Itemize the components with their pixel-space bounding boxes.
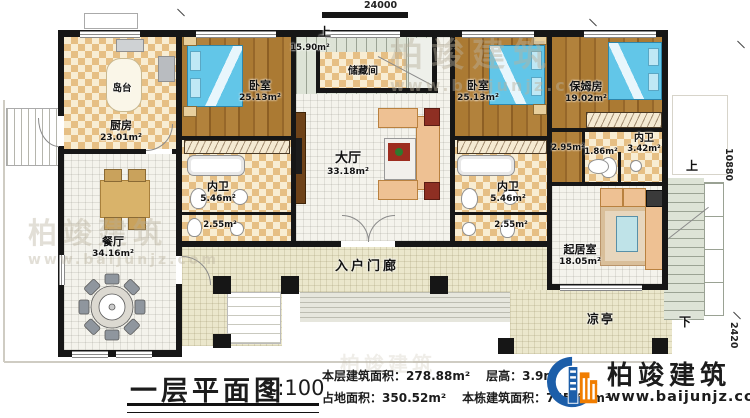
dim-right: 10880 [723,148,734,181]
terrace-outline [672,95,728,175]
floor-plan-sheet: 柏竣建筑 www.baijunjz.com 柏竣建筑 www.baijunjz.… [0,0,750,418]
right-staircase [664,178,704,320]
window [72,351,108,358]
porch-side-steps [227,292,281,344]
label-island: 岛台 [112,84,131,95]
label-kitchen: 厨房 23.01m² [100,120,142,143]
label-powder-right: 2.55m² [494,221,528,231]
label-nanny-vestibule: 1.86m² [584,148,618,158]
label-nanny-room: 保姆房 19.02m² [565,81,607,104]
porch-column [213,334,231,348]
dim-tick [177,9,185,17]
toilet [187,218,202,237]
label-up-right: 上 [686,160,698,174]
wall [455,136,547,140]
living-tv [646,190,663,207]
title-underline [127,403,319,413]
wall [450,241,552,247]
stat-footprint: 占地面积：350.52m² [322,389,446,406]
label-up-center: 上 [319,26,331,40]
bathtub-left [187,155,245,176]
hall-side-table [424,108,440,126]
label-living: 起居室 18.05m² [559,244,601,267]
dim-top: 24000 [364,0,397,11]
wall [182,136,291,140]
dining-chair [128,169,146,182]
dim-tick [733,312,741,320]
eave-left [84,13,138,29]
brand-name: 柏竣建筑 [607,355,731,392]
porch-column [430,276,448,294]
plan-scale: 1:100 [264,376,325,400]
hall-sofa-top [378,108,418,128]
dining-table-round [77,272,147,342]
wall [182,212,291,215]
dining-chair [128,217,146,230]
label-bath-left: 内卫 5.46m² [200,181,236,204]
dim-bottom-right: 2420 [728,322,739,348]
brand-logo-icon [545,353,603,411]
bed-nanny [608,42,662,100]
label-storage-area: 15.90m² [290,44,329,54]
wall [176,152,182,357]
nanny-closet-floor [552,132,582,182]
sink [588,159,609,174]
label-down-right: 下 [679,316,691,330]
shower-head [630,160,642,172]
wall [662,30,668,290]
wall [58,30,64,357]
hall-side-table [424,182,440,200]
bed-pillow [648,48,659,66]
label-nanny-bath: 内卫 3.42m² [627,133,661,154]
pavilion-column [498,338,514,354]
dim-tick [589,19,597,27]
bed-pillow [648,73,659,91]
dining-table-rect [100,180,150,218]
dining-chair [104,217,122,230]
wall [552,128,662,132]
wall [432,30,437,90]
label-bedroom-left: 卧室 25.13m² [239,80,281,103]
window [584,31,656,38]
window [560,285,642,291]
kitchen-sink [116,39,144,52]
porch-column [281,276,299,294]
kitchen-stove [158,56,175,82]
wall [552,182,662,186]
hall-tv [295,138,302,174]
sink [462,222,476,236]
brand-url: www.baijunjz.com [607,389,750,405]
wall [547,30,552,290]
label-bedroom-right: 卧室 25.13m² [457,80,499,103]
right-stair-columns [704,182,724,316]
entry-steps [300,292,510,322]
bed-pillow [531,77,542,96]
label-powder-left: 2.55m² [203,221,237,231]
hall-sofa-long [416,116,440,190]
porch-column [213,276,231,294]
wardrobe-right [457,140,547,154]
stat-floor-area: 本层建筑面积：278.88m² [322,367,470,384]
wardrobe-nanny [586,112,662,128]
hall-sofa-bottom [378,180,418,200]
living-sofa-top [600,188,646,207]
dim-tick [737,41,745,49]
nightstand [183,106,197,117]
window [59,255,65,285]
living-coffee-table [616,216,638,252]
ground-line-left [3,100,5,362]
window [80,31,140,38]
label-storage: 储藏间 [348,66,378,78]
bed-pillow [190,78,201,98]
wall [618,152,621,182]
bed-pillow [190,51,201,71]
wall [455,212,547,215]
hall-plant [395,148,403,156]
wall [176,241,296,247]
wardrobe-left [184,140,290,154]
label-pavilion: 凉亭 [587,313,615,327]
label-hall: 大厅 33.18m² [327,152,369,177]
wall [316,50,320,92]
bed-pillow [531,51,542,70]
window [116,351,152,358]
bed-left [187,45,243,107]
nightstand [533,104,547,115]
label-dining: 餐厅 34.16m² [92,236,134,259]
label-porch: 入户门廊 [335,260,399,275]
bathtub-right [457,155,515,176]
dining-chair [104,169,122,182]
wall [291,30,296,247]
label-nanny-closet: 2.95m² [551,144,585,154]
window [196,31,276,38]
balcony-overhang [322,12,408,18]
toilet [461,188,478,209]
label-bath-right: 内卫 5.46m² [490,181,526,204]
window [325,31,400,38]
wall [316,88,438,93]
pavilion-column [652,338,668,354]
window [462,31,534,38]
